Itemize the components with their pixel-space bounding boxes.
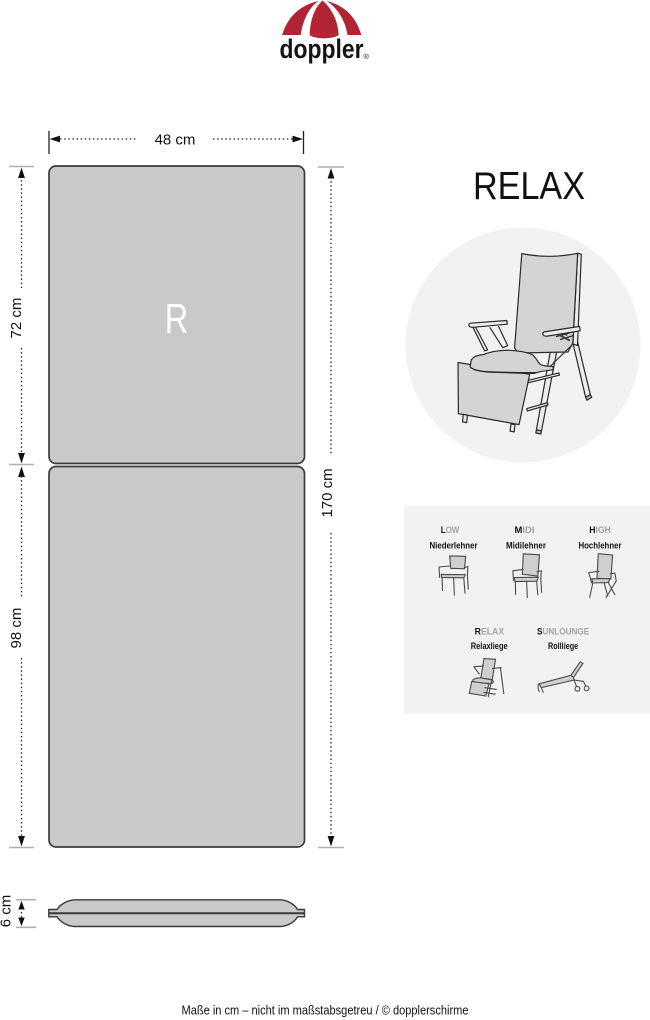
svg-text:170 cm: 170 cm	[319, 468, 336, 517]
svg-text:doppler: doppler	[280, 34, 364, 64]
svg-text:MIDI: MIDI	[515, 525, 535, 536]
svg-text:Relaxliege: Relaxliege	[471, 641, 508, 652]
svg-text:Niederlehner: Niederlehner	[430, 541, 478, 552]
svg-text:Midilehner: Midilehner	[506, 541, 546, 552]
svg-text:RELAX: RELAX	[475, 627, 505, 638]
svg-text:LOW: LOW	[441, 525, 460, 536]
svg-text:SUNLOUNGE: SUNLOUNGE	[537, 627, 589, 638]
svg-text:HIGH: HIGH	[589, 525, 611, 536]
svg-text:R: R	[165, 295, 189, 342]
svg-text:®: ®	[364, 52, 370, 61]
svg-text:Maße in cm – nicht im maßstabs: Maße in cm – nicht im maßstabsgetreu / ©…	[182, 1003, 469, 1018]
svg-text:98 cm: 98 cm	[8, 608, 25, 649]
svg-text:48 cm: 48 cm	[155, 131, 196, 148]
svg-text:72 cm: 72 cm	[8, 298, 25, 339]
svg-text:RELAX: RELAX	[473, 165, 585, 208]
svg-text:6 cm: 6 cm	[0, 895, 15, 928]
svg-text:Rollliege: Rollliege	[548, 641, 578, 652]
svg-text:Hochlehner: Hochlehner	[579, 541, 622, 552]
